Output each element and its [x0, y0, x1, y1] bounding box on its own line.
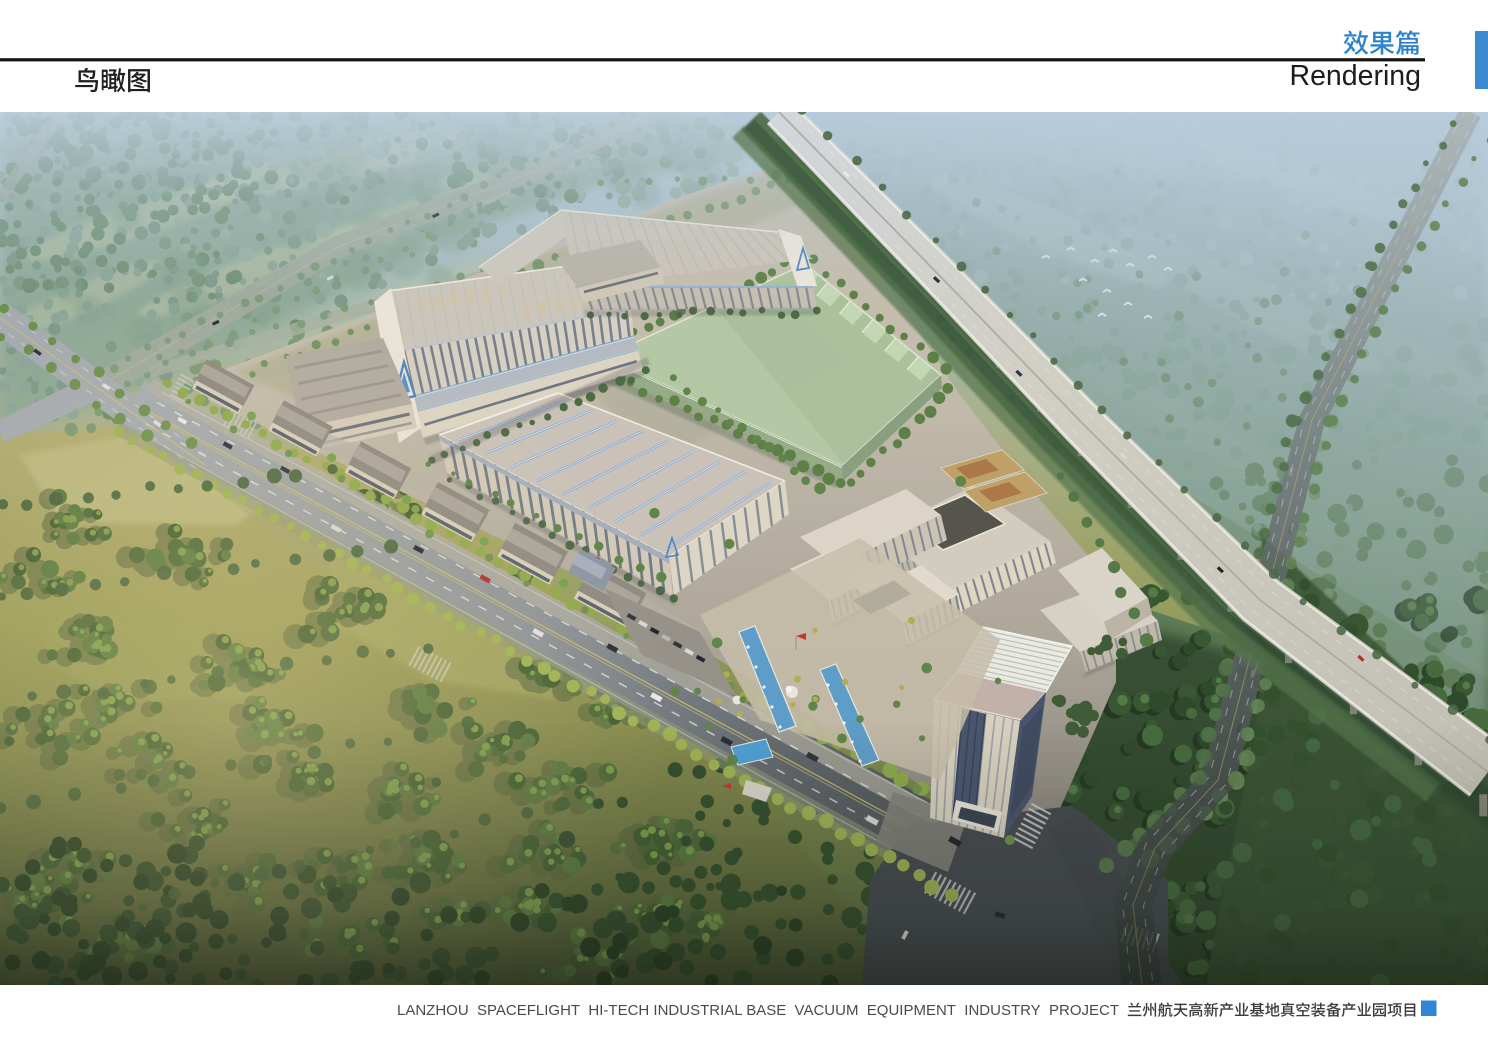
svg-text:Rendering: Rendering	[1289, 60, 1421, 92]
svg-text:LANZHOU SPACEFLIGHT HI-TECH: LANZHOU SPACEFLIGHT HI-TECH INDUSTRIAL B…	[397, 1002, 1119, 1019]
